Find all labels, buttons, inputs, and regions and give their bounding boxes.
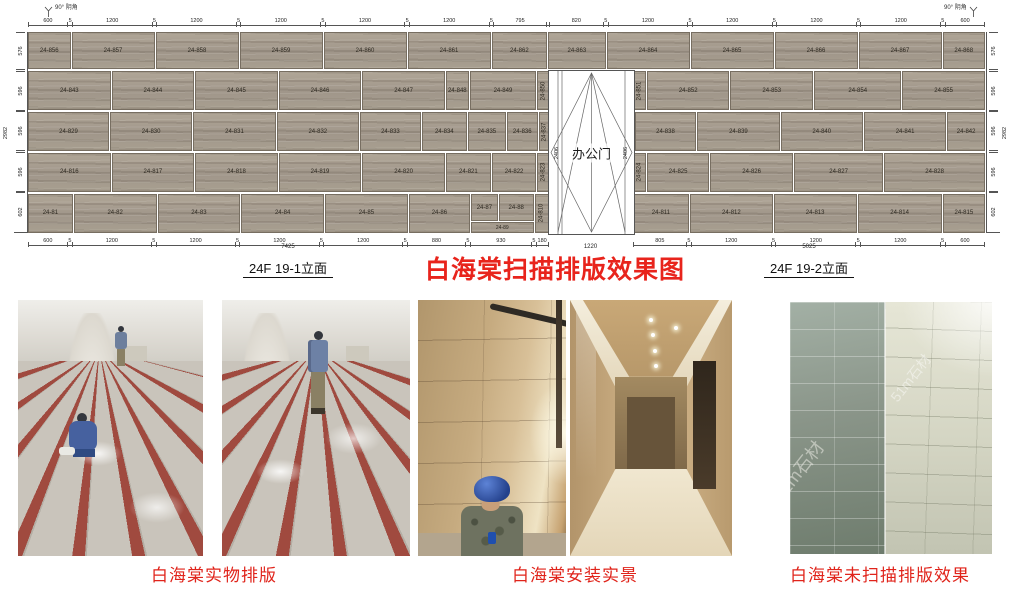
panel-number: 24-839 — [729, 129, 748, 135]
stone-panel: 24-87 — [471, 194, 498, 221]
stone-panel: 24-849 — [470, 71, 536, 110]
panel-number: 24-812 — [722, 210, 741, 216]
stone-panel: 24-822 — [492, 153, 536, 192]
stone-panel: 24-825 — [647, 153, 709, 192]
corner-left-face — [790, 302, 885, 554]
panel-number: 24-81 — [43, 210, 58, 216]
stone-panel: 24-863 — [548, 32, 605, 69]
dimension-segment: 596 — [14, 112, 27, 151]
dimension-segment: 795 — [494, 14, 547, 26]
stone-panel: 24-867 — [859, 32, 942, 69]
panel-number: 24-852 — [679, 88, 698, 94]
stone-panel: 24-842 — [947, 112, 985, 151]
panel-number: 24-811 — [652, 210, 670, 216]
stone-panel: 24-82 — [74, 194, 157, 233]
stone-panel: 24-862 — [492, 32, 548, 69]
stone-panel: 24-860 — [324, 32, 407, 69]
caption-unscanned-effect: 白海棠未扫描排版效果 — [790, 561, 970, 586]
panel-number: 24-814 — [890, 210, 909, 216]
worker-standing — [305, 331, 331, 415]
panel-row: 24-81624-81724-81824-81924-82024-82124-8… — [28, 153, 985, 192]
panel-number: 24-859 — [272, 48, 291, 54]
stone-panel: 24-81 — [28, 194, 73, 233]
photo-unscanned-wall-corner: 51m石材 51m石材 — [790, 302, 992, 554]
dimension-segment: 1200 — [157, 14, 237, 26]
floor-glare — [325, 423, 381, 454]
office-door: 2406 办公门 2406 — [548, 70, 635, 235]
corner-note-text: 90° 阴角 — [944, 2, 967, 11]
stone-panel: 24-89 — [471, 222, 534, 233]
panel-number: 24-810 — [539, 204, 545, 223]
stone-panel: 24-829 — [28, 112, 109, 151]
panel-number: 24-821 — [459, 169, 478, 175]
panel-number: 24-851 — [637, 82, 643, 101]
panel-number: 24-844 — [144, 88, 163, 94]
panel-row: 24-85624-85724-85824-85924-86024-86124-8… — [28, 32, 985, 69]
stone-panel: 24-856 — [28, 32, 71, 69]
stone-panel: 24-851 — [634, 71, 646, 110]
stone-panel: 24-832 — [277, 112, 359, 151]
stone-panel: 24-865 — [691, 32, 774, 69]
dimension-segment: 596 — [14, 71, 27, 110]
door-label: 办公门 — [570, 143, 613, 162]
panel-number: 24-843 — [60, 88, 79, 94]
panel-number: 24-836 — [513, 129, 532, 135]
panel-number: 24-813 — [806, 210, 825, 216]
panel-number: 24-83 — [191, 210, 206, 216]
panel-number: 24-835 — [477, 129, 496, 135]
stone-panel: 24-821 — [446, 153, 491, 192]
panel-number: 24-841 — [896, 129, 915, 135]
panel-number: 24-85 — [359, 210, 374, 216]
panel-number: 24-824 — [637, 163, 643, 182]
worker-crouching — [59, 413, 103, 465]
stone-panel: 24-866 — [775, 32, 858, 69]
corridor-depth — [627, 397, 676, 474]
panel-number: 24-823 — [540, 163, 546, 182]
panel-number: 24-830 — [142, 129, 161, 135]
panel-number: 24-856 — [40, 48, 59, 54]
panel-number: 24-87 — [477, 205, 492, 211]
corner-edge — [884, 302, 886, 554]
stone-panel: 24-844 — [112, 71, 195, 110]
worker-blue-helmet — [460, 476, 524, 556]
dimension-segment: 1200 — [72, 14, 152, 26]
dimension-segment: 1200 — [777, 14, 857, 26]
panel-number: 24-848 — [448, 88, 467, 94]
stone-panel: 24-819 — [279, 153, 362, 192]
stone-panel: 24-853 — [730, 71, 813, 110]
stone-panel: 24-86 — [409, 194, 470, 233]
panel-number: 24-84 — [275, 210, 290, 216]
stone-panel: 24-88 — [499, 194, 534, 221]
panel-number: 24-850 — [540, 82, 546, 101]
stone-panel: 24-861 — [408, 32, 491, 69]
panel-number: 24-855 — [934, 88, 953, 94]
caption-physical-layout: 白海棠实物排版 — [151, 561, 277, 586]
stone-panel: 24-813 — [774, 194, 857, 233]
floor-glare — [129, 492, 185, 523]
left-dimension-chain: 5764596459645964602 — [14, 32, 28, 233]
stone-panel: 24-84 — [241, 194, 324, 233]
panel-row: 24-8124-8224-8324-8424-8524-8624-8724-88… — [28, 194, 985, 233]
camo-jacket — [461, 506, 523, 556]
stone-layout-elevation: 90° 阴角 90° 阴角 60051200512005120051200512… — [0, 0, 1010, 296]
stone-panel: 24-820 — [362, 153, 445, 192]
panel-number: 24-827 — [829, 169, 848, 175]
dark-door-slab — [693, 361, 716, 489]
corner-note-text: 90° 阴角 — [55, 2, 78, 11]
dimension-segment: 1200 — [409, 14, 489, 26]
stone-panel: 24-845 — [195, 71, 278, 110]
panel-number: 24-818 — [227, 169, 246, 175]
stone-panel: 24-857 — [72, 32, 155, 69]
panel-number: 24-845 — [227, 88, 246, 94]
panel-number: 24-837 — [542, 122, 548, 141]
panel-number: 24-838 — [656, 129, 675, 135]
stone-panel: 24-830 — [110, 112, 192, 151]
panel-number: 24-862 — [510, 48, 529, 54]
panel-number: 24-846 — [311, 88, 330, 94]
stone-panel: 24-839 — [697, 112, 779, 151]
dimension-segment: 1200 — [608, 14, 688, 26]
panel-row: 24-82924-83024-83124-83224-83324-83424-8… — [28, 112, 985, 151]
stone-panel: 24-836 — [507, 112, 538, 151]
caption-installation: 白海棠安装实景 — [512, 561, 638, 586]
stone-panel: 24-827 — [794, 153, 883, 192]
door-height-dim: 2406 — [623, 146, 629, 158]
stone-panel: 24-833 — [360, 112, 421, 151]
stone-panel: 24-85 — [325, 194, 408, 233]
stone-panel: 24-815 — [943, 194, 985, 233]
stone-panel: 24-835 — [468, 112, 506, 151]
dimension-segment: 602 — [14, 192, 27, 233]
panel-number: 24-825 — [669, 169, 688, 175]
panel-number: 24-815 — [954, 210, 973, 216]
right-dimension-chain: 5764596459645964602 — [986, 32, 1000, 233]
stone-panel: 24-848 — [446, 71, 469, 110]
ceiling-light — [674, 326, 678, 330]
stone-panel: 24-83 — [158, 194, 241, 233]
panel-number: 24-861 — [440, 48, 459, 54]
stone-panel: 24-859 — [240, 32, 323, 69]
worker-standing-far — [114, 326, 128, 368]
ceiling-light — [653, 349, 657, 353]
stone-panel: 24-810 — [535, 194, 549, 233]
stone-panel: 24-868 — [943, 32, 986, 69]
panel-number: 24-840 — [812, 129, 831, 135]
panel-number: 24-863 — [567, 48, 586, 54]
panel-number: 24-867 — [891, 48, 910, 54]
panel-number: 24-853 — [762, 88, 781, 94]
panel-number: 24-826 — [742, 169, 761, 175]
dimension-segment: 576 — [14, 32, 27, 70]
panel-number: 24-866 — [807, 48, 826, 54]
stone-panel: 24-840 — [781, 112, 863, 151]
stone-panel: 24-847 — [362, 71, 445, 110]
stone-panel: 24-818 — [195, 153, 278, 192]
photo-factory-layout-2 — [222, 300, 410, 556]
panel-row: 24-84324-84424-84524-84624-84724-84824-8… — [28, 71, 985, 110]
panel-cluster: 24-8724-8824-89 — [471, 194, 534, 233]
stone-panel: 24-858 — [156, 32, 239, 69]
elevation-label-right: 24F 19-2立面 — [633, 258, 985, 277]
panel-number: 24-834 — [435, 129, 454, 135]
stone-panel: 24-852 — [647, 71, 730, 110]
panel-number: 24-854 — [848, 88, 867, 94]
door-height-dim: 2406 — [554, 146, 560, 158]
stone-panel: 24-854 — [814, 71, 901, 110]
panel-number: 24-89 — [496, 225, 509, 231]
panel-number: 24-82 — [107, 210, 122, 216]
dimension-segment: 1200 — [241, 14, 321, 26]
right-total-dimension: 2982 — [999, 32, 1010, 233]
left-total-dimension: 2982 — [0, 32, 12, 233]
panel-number: 24-822 — [505, 169, 524, 175]
stone-panel-wall: 24-85624-85724-85824-85924-86024-86124-8… — [28, 32, 985, 233]
floor-glare — [256, 459, 305, 485]
stone-panel: 24-864 — [607, 32, 690, 69]
dimension-segment: 600 — [945, 14, 985, 26]
panel-number: 24-828 — [925, 169, 944, 175]
stone-panel: 24-824 — [634, 153, 646, 192]
stone-panel: 24-811 — [633, 194, 689, 233]
panel-number: 24-832 — [308, 129, 327, 135]
dimension-segment: 1200 — [861, 14, 941, 26]
panel-number: 24-842 — [957, 129, 976, 135]
panel-number: 24-860 — [356, 48, 375, 54]
stone-panel: 24-817 — [112, 153, 195, 192]
panel-number: 24-816 — [60, 169, 79, 175]
dimension-segment: 596 — [14, 152, 27, 191]
stone-panel: 24-814 — [858, 194, 942, 233]
panel-number: 24-865 — [723, 48, 742, 54]
panel-number: 24-819 — [311, 169, 330, 175]
top-dimension-chain: 6005120051200512005120051200579582051200… — [28, 14, 985, 26]
panel-number: 24-817 — [144, 169, 163, 175]
dimension-segment: 1200 — [325, 14, 405, 26]
stone-panel: 24-812 — [690, 194, 773, 233]
panel-number: 24-88 — [509, 205, 524, 211]
photo-install-wall — [418, 300, 566, 556]
dimension-segment: 600 — [28, 14, 68, 26]
stone-panel: 24-846 — [279, 71, 362, 110]
panel-number: 24-858 — [188, 48, 207, 54]
panel-number: 24-857 — [104, 48, 123, 54]
panel-number: 24-833 — [381, 129, 400, 135]
panel-number: 24-864 — [639, 48, 658, 54]
stone-panel: 24-831 — [193, 112, 275, 151]
stone-panel: 24-834 — [422, 112, 467, 151]
photo-factory-layout-1 — [18, 300, 203, 556]
page: { "colors":{"accent_red":"#e8241c","ston… — [0, 0, 1010, 591]
stone-panel: 24-843 — [28, 71, 111, 110]
panel-number: 24-868 — [954, 48, 973, 54]
panel-number: 24-86 — [432, 210, 447, 216]
panel-number: 24-831 — [225, 129, 244, 135]
stone-panel: 24-816 — [28, 153, 111, 192]
stone-panel: 24-826 — [710, 153, 793, 192]
panel-number: 24-849 — [494, 88, 513, 94]
stone-panel: 24-838 — [635, 112, 697, 151]
photo-install-corridor — [570, 300, 732, 556]
panel-number: 24-847 — [394, 88, 413, 94]
stone-panel: 24-828 — [884, 153, 985, 192]
stone-panel: 24-841 — [864, 112, 946, 151]
dimension-segment: 820 — [549, 14, 603, 26]
panel-number: 24-820 — [394, 169, 413, 175]
dimension-segment: 1200 — [692, 14, 772, 26]
blue-hard-hat-icon — [474, 476, 510, 502]
door-edge — [556, 300, 562, 448]
stone-panel: 24-855 — [902, 71, 985, 110]
panel-number: 24-829 — [59, 129, 78, 135]
chest-item — [488, 532, 496, 544]
